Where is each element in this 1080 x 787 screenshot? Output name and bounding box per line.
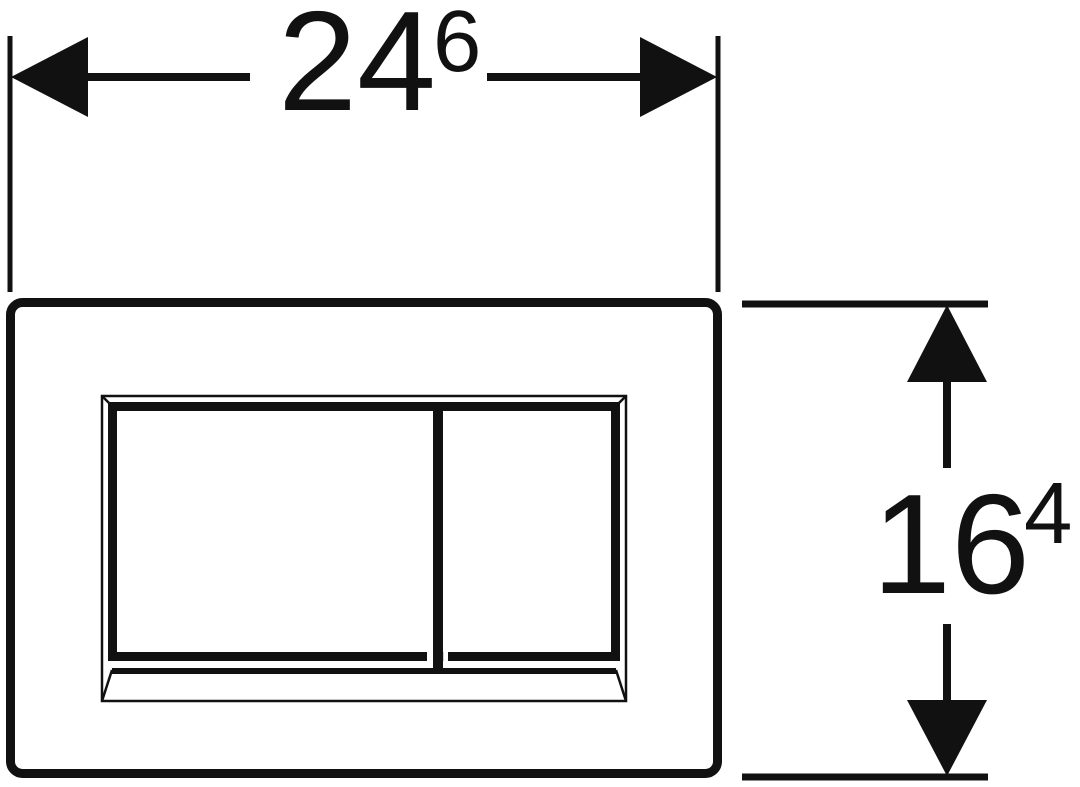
button-bottom-edge-gap-right xyxy=(443,651,448,663)
height-dimension-superscript: 4 xyxy=(1024,465,1072,562)
height-dimension-value: 16 xyxy=(872,465,1030,624)
bevel-diagonal-top-right xyxy=(617,396,627,406)
bevel-diagonal-bottom-right xyxy=(616,670,626,701)
dimension-drawing-canvas: 24 6 16 4 xyxy=(0,0,1080,787)
bevel-diagonal-top-left xyxy=(102,396,112,406)
technical-drawing: 24 6 16 4 xyxy=(0,0,1080,787)
width-dimension-superscript: 6 xyxy=(433,0,481,90)
bevel-diagonal-bottom-left xyxy=(102,670,112,701)
button-panel-outline xyxy=(113,407,616,657)
width-dimension-value: 24 xyxy=(278,0,436,141)
width-arrowhead-left-icon xyxy=(11,37,88,117)
button-bottom-edge-gap-left xyxy=(427,651,433,663)
height-arrowhead-up-icon xyxy=(907,305,987,382)
width-arrowhead-right-icon xyxy=(640,37,717,117)
height-arrowhead-down-icon xyxy=(907,700,987,776)
